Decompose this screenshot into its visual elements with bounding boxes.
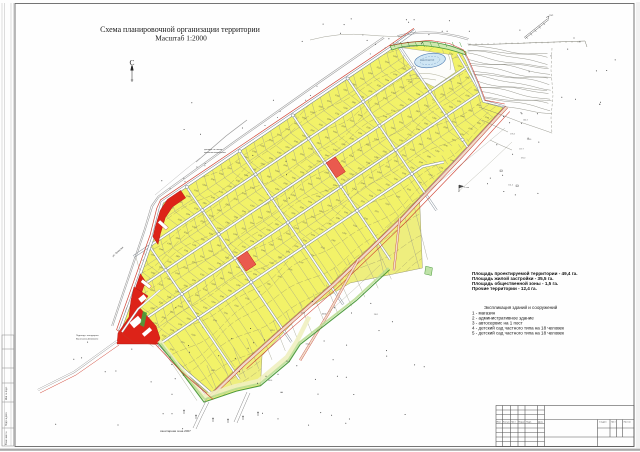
svg-text:158.1: 158.1 [211,370,216,372]
svg-text:Лист: Лист [511,422,516,424]
svg-text:152.6: 152.6 [270,330,275,332]
svg-text:168.9: 168.9 [322,314,327,316]
svg-text:землепользователем: землепользователем [204,152,226,154]
svg-text:1 изм: 1 изм [464,187,470,189]
svg-text:191.0: 191.0 [521,157,526,159]
svg-text:150.1: 150.1 [306,344,311,346]
svg-text:Лист: Лист [611,422,616,424]
svg-text:Инв № подл.: Инв № подл. [5,386,8,400]
svg-text:198.6: 198.6 [527,139,532,141]
svg-text:5 - детский сад частного типа: 5 - детский сад частного типа на 18 чело… [472,330,564,336]
svg-text:151.5: 151.5 [508,184,513,186]
svg-text:Прочие территории - 12,4 га.: Прочие территории - 12,4 га. [472,286,537,291]
svg-text:Листов: Листов [624,422,632,424]
svg-text:№док: №док [519,421,525,424]
svg-text:пруд (водоем): пруд (водоем) [420,59,435,61]
svg-text:157.7: 157.7 [519,149,524,151]
svg-text:Подъезд с автодороги: Подъезд с автодороги [76,335,99,337]
svg-text:Взам. инв №: Взам. инв № [5,431,8,445]
svg-text:санитарная зона 2007: санитарная зона 2007 [160,429,191,433]
svg-text:Дата: Дата [538,422,544,424]
svg-text:185.4: 185.4 [268,380,273,382]
svg-text:Изм: Изм [497,422,502,424]
svg-text:ЛЭП: ЛЭП [549,15,554,17]
svg-text:Кол.уч: Кол.уч [503,422,510,424]
svg-text:Масштаб 1:2000: Масштаб 1:2000 [155,34,207,43]
svg-text:110.0: 110.0 [286,361,290,363]
svg-text:164.3: 164.3 [523,120,528,122]
svg-text:178.4: 178.4 [510,134,515,136]
svg-text:граница со смежн.: граница со смежн. [204,149,223,151]
svg-text:Экспликация зданий и сооружени: Экспликация зданий и сооружений [484,304,558,310]
svg-text:Васильево-Шемякино: Васильево-Шемякино [76,339,99,341]
svg-text:Стадия: Стадия [599,422,607,424]
svg-text:Подп.: Подп. [526,422,532,424]
svg-text:121.8: 121.8 [301,313,306,315]
svg-text:116.1: 116.1 [374,314,378,316]
svg-text:Подп. и дата: Подп. и дата [6,412,8,426]
